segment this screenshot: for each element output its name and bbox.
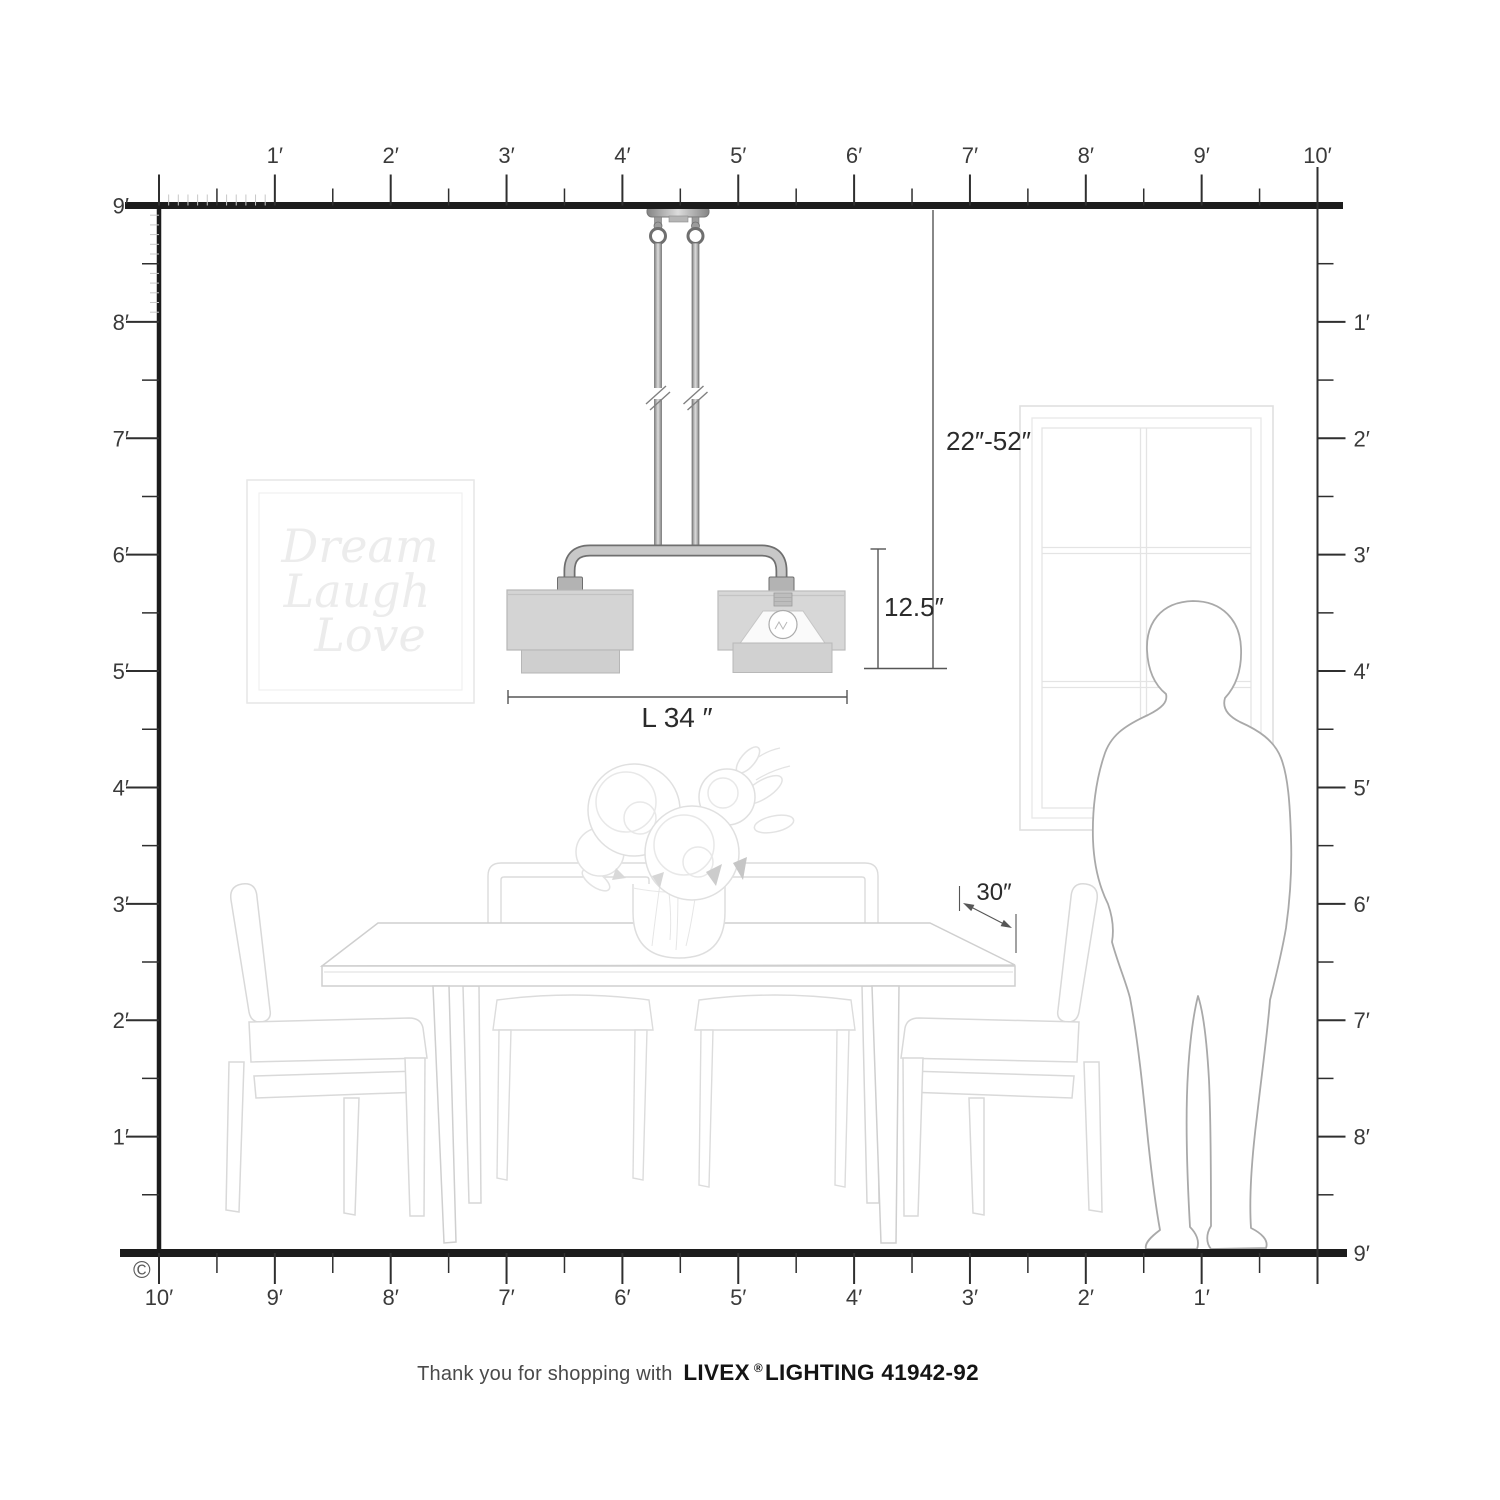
- ruler-top-label-1: 1′: [267, 143, 283, 168]
- chair-seat-center-left: [493, 995, 653, 1180]
- chair-seat-center-right: [695, 995, 855, 1187]
- socket-right: [769, 577, 794, 592]
- ruler-top-label-4: 4′: [614, 143, 630, 168]
- ruler-left-label-2: 7′: [113, 426, 129, 451]
- light-fixture: [507, 206, 845, 673]
- footer-caption: Thank you for shopping with LIVEX®LIGHTI…: [0, 1360, 1448, 1386]
- label-table-depth: 30″: [976, 879, 1012, 906]
- ruler-top-label-8: 8′: [1078, 143, 1094, 168]
- ruler-bottom-label-3: 7′: [498, 1285, 514, 1310]
- wall-art-frame: Dream Laugh Love: [247, 480, 474, 703]
- copyright-symbol: ©: [133, 1257, 151, 1284]
- ruler-right-label-8: 8′: [1354, 1125, 1370, 1150]
- footer-product: LIGHTING 41942-92: [765, 1360, 979, 1385]
- ruler-top-label-2: 2′: [383, 143, 399, 168]
- ruler-bottom-label-1: 9′: [267, 1285, 283, 1310]
- ruler-left-label-3: 6′: [113, 543, 129, 568]
- ruler-bottom-label-9: 1′: [1193, 1285, 1209, 1310]
- ruler-right-label-3: 3′: [1354, 543, 1370, 568]
- footer-message: Thank you for shopping with: [417, 1363, 673, 1385]
- ruler-left-label-7: 2′: [113, 1008, 129, 1033]
- shade-left: [507, 590, 633, 673]
- ruler-bottom-label-7: 3′: [962, 1285, 978, 1310]
- ruler-right-label-7: 7′: [1354, 1008, 1370, 1033]
- ruler-bottom-label-0: 10′: [145, 1285, 174, 1310]
- label-fixture-length: L 34 ″: [641, 702, 712, 733]
- label-hanging-height: 22″-52″: [946, 426, 1031, 456]
- footer-brand: LIVEX: [683, 1360, 750, 1385]
- ruler-top-label-5: 5′: [730, 143, 746, 168]
- ruler-right-label-4: 4′: [1354, 659, 1370, 684]
- ruler-right-label-2: 2′: [1354, 426, 1370, 451]
- label-fixture-height: 12.5″: [884, 592, 944, 622]
- ruler-left-label-8: 1′: [113, 1125, 129, 1150]
- ruler-left-label-0: 9′: [113, 194, 129, 219]
- ruler-bottom-label-4: 6′: [614, 1285, 630, 1310]
- ruler-right-label-5: 5′: [1354, 775, 1370, 800]
- fixture-frame-bar: [570, 551, 782, 584]
- ruler-left-label-4: 5′: [113, 659, 129, 684]
- bulb-socket: [774, 593, 792, 606]
- ruler-bottom-label-2: 8′: [383, 1285, 399, 1310]
- ruler-right-label-1: 1′: [1354, 310, 1370, 335]
- ruler-right-label-9: 9′: [1354, 1241, 1370, 1266]
- ruler-bottom-label-6: 4′: [846, 1285, 862, 1310]
- scale-diagram-page: Dream Laugh Love: [0, 0, 1500, 1500]
- ruler-bottom-label-5: 5′: [730, 1285, 746, 1310]
- ruler-top-label-3: 3′: [498, 143, 514, 168]
- room-scene: Dream Laugh Love: [226, 406, 1291, 1249]
- ruler-left-label-1: 8′: [113, 310, 129, 335]
- ruler-top-label-7: 7′: [962, 143, 978, 168]
- ruler-bottom-label-8: 2′: [1078, 1285, 1094, 1310]
- ruler-left-label-6: 3′: [113, 892, 129, 917]
- wall-art-line-3: Love: [313, 608, 425, 662]
- shade-right-cutaway: [718, 591, 845, 673]
- diagram-canvas: Dream Laugh Love: [0, 0, 1500, 1500]
- ruler-top-label-9: 9′: [1193, 143, 1209, 168]
- ruler-top-label-6: 6′: [846, 143, 862, 168]
- ruler-right-label-6: 6′: [1354, 892, 1370, 917]
- ruler-top-label-10: 10′: [1303, 143, 1332, 168]
- registered-trademark-icon: ®: [754, 1361, 763, 1375]
- ruler-left-label-5: 4′: [113, 775, 129, 800]
- light-bulb: [769, 611, 797, 639]
